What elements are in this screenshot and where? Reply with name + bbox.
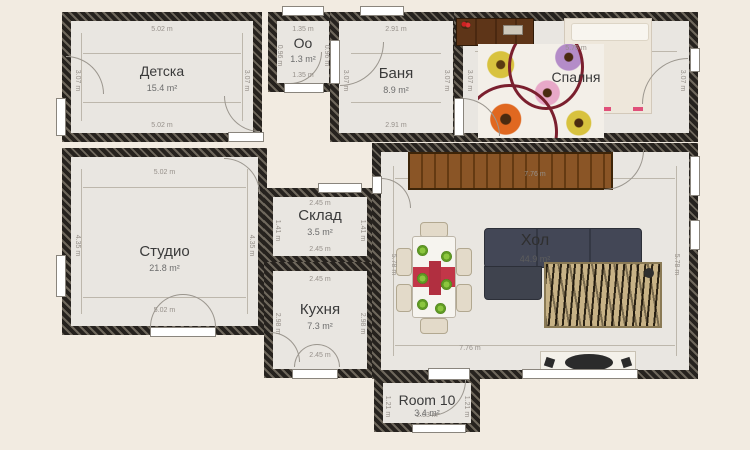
dim-top: 7.76 m <box>381 171 689 178</box>
room-label: Детска <box>71 63 253 79</box>
dim-line <box>83 53 241 54</box>
room-area: 21.8 m² <box>71 263 258 273</box>
dining-chair[interactable] <box>396 284 412 312</box>
room-label: Баня <box>339 65 453 82</box>
room-label: Room 10 <box>383 392 471 408</box>
room-area: 8.9 m² <box>339 85 453 95</box>
dim-top: 2.91 m <box>339 26 453 33</box>
door-opening[interactable] <box>318 183 362 193</box>
door-opening[interactable] <box>284 83 324 93</box>
dim-top: 5.02 m <box>71 26 253 33</box>
floor-plan-canvas[interactable]: Детска 15.4 m² 5.02 m 5.02 m 3.07 m 3.07… <box>0 0 750 450</box>
dining-chair[interactable] <box>420 318 448 334</box>
window[interactable] <box>360 6 404 16</box>
door-opening[interactable] <box>228 132 264 142</box>
room-area: 3.5 m² <box>273 227 367 237</box>
room-label: Кухня <box>273 301 367 318</box>
door-opening[interactable] <box>292 369 338 379</box>
window[interactable] <box>56 98 66 136</box>
dim-bottom: 7.76 m <box>251 345 689 352</box>
side-table[interactable] <box>644 268 654 278</box>
dim-line <box>83 102 241 103</box>
door-opening[interactable] <box>454 98 464 136</box>
room-area: 1.3 m² <box>277 54 329 64</box>
room-detska[interactable]: Детска 15.4 m² 5.02 m 5.02 m 3.07 m 3.07… <box>62 12 262 142</box>
sofa-chaise[interactable] <box>484 266 542 300</box>
door-opening[interactable] <box>428 368 470 380</box>
dim-bottom: 1.35 m <box>277 72 329 79</box>
room-area: 3.4 m² <box>383 408 471 418</box>
plate <box>435 303 446 314</box>
dim-bottom: 2.45 m <box>273 352 367 359</box>
pillow <box>571 23 649 41</box>
dim-top: 2.45 m <box>273 200 367 207</box>
dim-line <box>83 297 246 298</box>
flower-vase <box>461 21 471 29</box>
dim-bottom: 5.02 m <box>71 122 253 129</box>
window[interactable] <box>56 255 66 297</box>
window[interactable] <box>690 156 700 196</box>
room-label: Студио <box>71 243 258 260</box>
plate <box>441 279 452 290</box>
dim-line <box>351 102 441 103</box>
room-area: 15.4 m² <box>71 83 253 93</box>
room-banya[interactable]: Баня 8.9 m² 2.91 m 2.91 m 3.07 m 3.07 m <box>330 12 462 142</box>
room-label: Склад <box>273 207 367 224</box>
room-label: Хол <box>381 232 689 250</box>
plate <box>417 299 428 310</box>
dresser[interactable] <box>456 18 534 46</box>
speaker <box>544 357 555 368</box>
table-runner <box>429 261 441 295</box>
room-label: Оо <box>277 35 329 51</box>
window[interactable] <box>522 369 638 379</box>
dim-top: 1.35 m <box>277 26 329 33</box>
door-opening[interactable] <box>372 176 382 194</box>
dim-top: 5.02 m <box>71 169 258 176</box>
window[interactable] <box>690 220 700 250</box>
dim-line <box>83 187 246 188</box>
window[interactable] <box>690 48 700 72</box>
speaker <box>621 357 632 368</box>
plate <box>417 273 428 284</box>
dim-top: 2.45 m <box>273 276 367 283</box>
dim-bottom: 2.45 m <box>273 246 367 253</box>
dim-top: 5.75 m <box>463 45 689 52</box>
door-opening[interactable] <box>412 424 466 433</box>
room-label: Спалня <box>463 69 689 85</box>
door-opening[interactable] <box>150 327 216 337</box>
dim-bottom: 5.02 m <box>71 307 258 314</box>
dining-chair[interactable] <box>456 284 472 312</box>
room-area: 44.9 m² <box>381 254 689 264</box>
dim-bottom: 2.91 m <box>339 122 453 129</box>
blanket-trim <box>633 107 643 111</box>
window[interactable] <box>282 6 324 16</box>
room-area: 7.3 m² <box>273 321 367 331</box>
tray <box>503 25 523 35</box>
room-sklad[interactable]: Склад 3.5 m² 2.45 m 2.45 m 1.41 m 1.41 m <box>264 188 376 265</box>
